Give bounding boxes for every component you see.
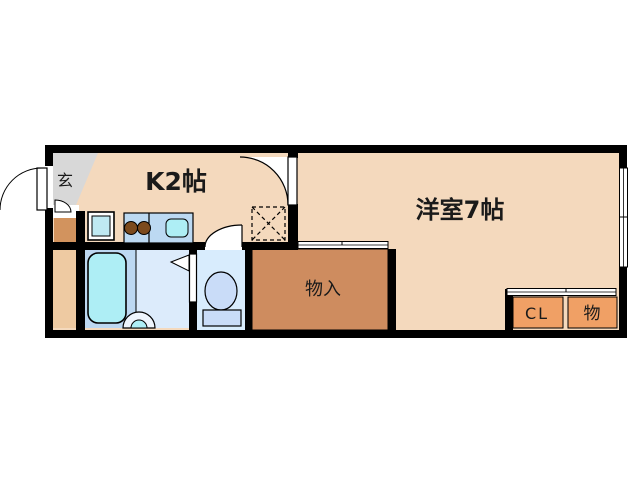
entrance-door-arc bbox=[0, 168, 42, 210]
washroom-door-leaf bbox=[190, 254, 197, 302]
wall-storage-top bbox=[242, 242, 298, 250]
storage-sliding-door bbox=[298, 242, 388, 249]
stove-burner bbox=[138, 222, 151, 235]
small-storage-label: 物 bbox=[584, 304, 601, 324]
wall-corridor-bath bbox=[76, 211, 85, 330]
entrance-door-leaf bbox=[37, 168, 47, 210]
wall-storage-right bbox=[388, 249, 396, 330]
closet-sliding-door bbox=[507, 289, 616, 296]
genkan-label: 玄 bbox=[57, 171, 73, 190]
kitchen-door-leaf bbox=[288, 157, 297, 205]
kitchen-label: K2帖 bbox=[145, 167, 207, 196]
storage-label: 物入 bbox=[305, 279, 341, 300]
wall-wash-toilet-top bbox=[189, 242, 197, 254]
floor-plan-drawing: 玄 K2帖 洋室7帖 物入 CL 物 bbox=[0, 0, 638, 480]
wall-wash-toilet-bottom bbox=[189, 301, 197, 330]
washing-machine-pan bbox=[88, 212, 114, 240]
closet-label: CL bbox=[525, 304, 549, 323]
kitchen-counter bbox=[124, 213, 193, 243]
stove-burner bbox=[125, 222, 138, 235]
wall-toilet-storage bbox=[245, 249, 252, 330]
floor-plan-page: 玄 K2帖 洋室7帖 物入 CL 物 bbox=[0, 0, 638, 480]
bathtub bbox=[88, 253, 126, 323]
hall-step bbox=[54, 218, 79, 242]
window bbox=[620, 168, 628, 267]
kitchen-sink bbox=[166, 219, 188, 237]
western-room-label: 洋室7帖 bbox=[416, 196, 505, 224]
side-corridor bbox=[53, 250, 76, 328]
